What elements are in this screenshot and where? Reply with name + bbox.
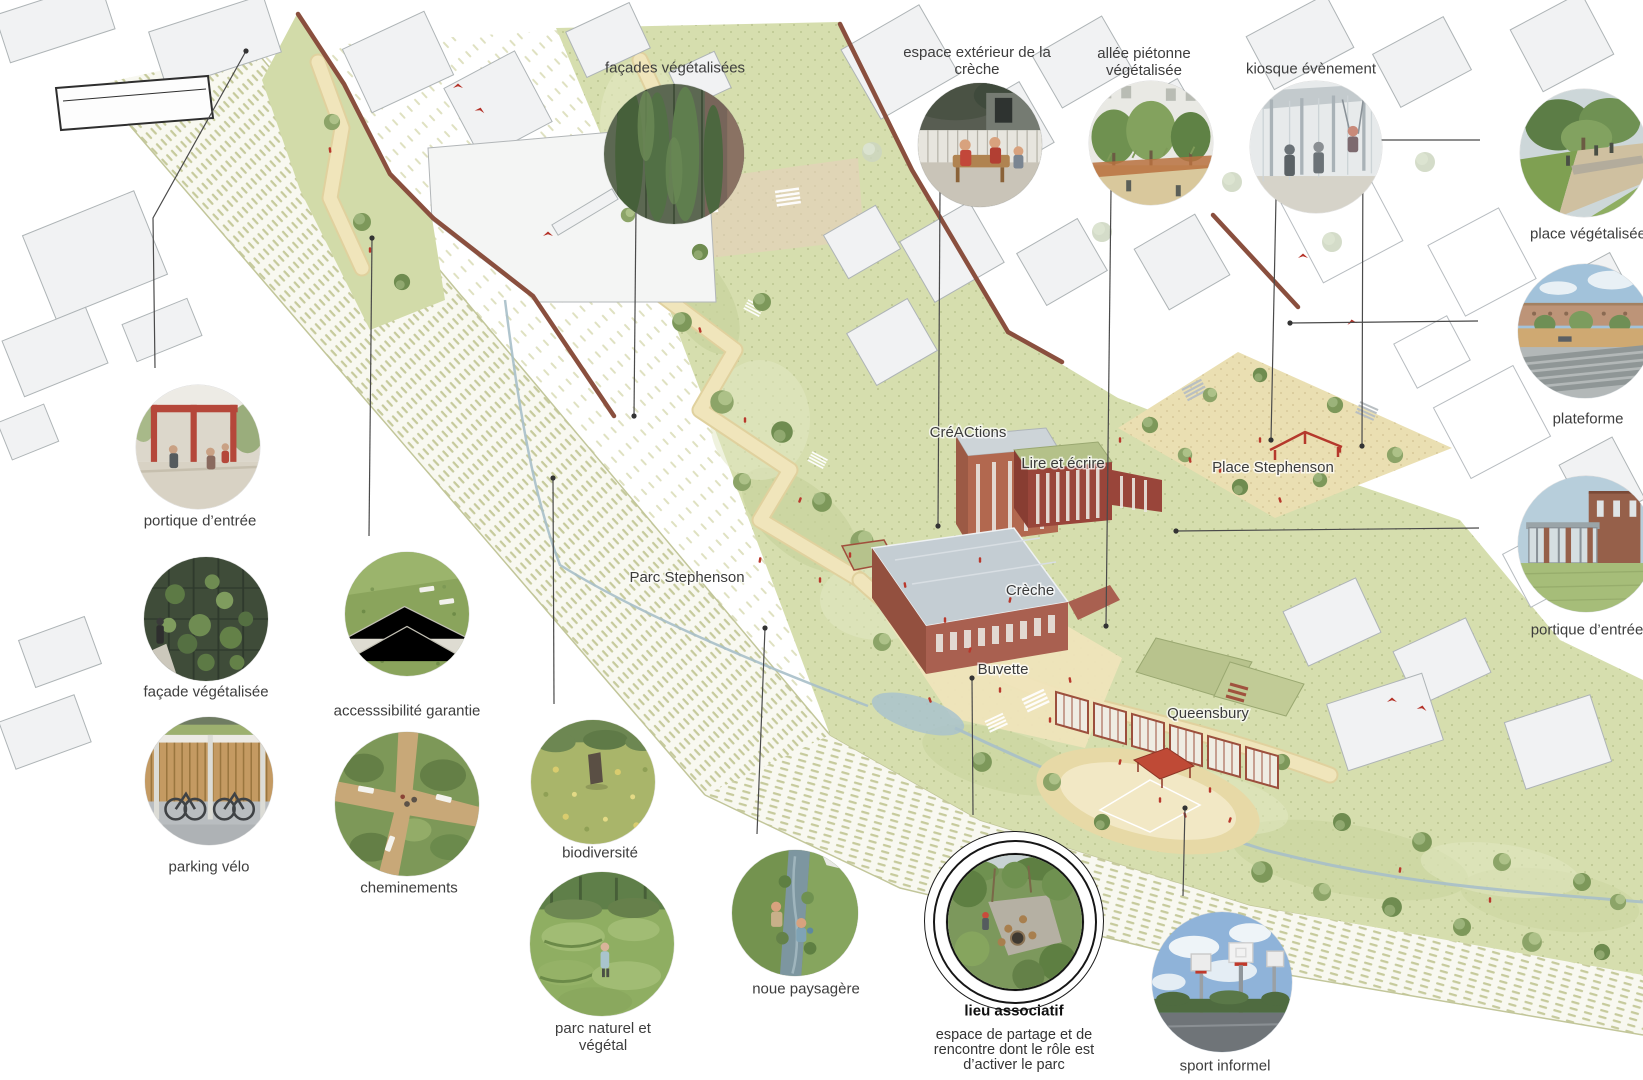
label-sport-informel: sport informel [1180,1059,1271,1076]
photo-portique-entree-gauche [136,385,260,509]
photo-parking-velo [145,717,273,845]
label-biodiversite: biodiversité [562,846,638,863]
label-noue-paysagere: noue paysagère [752,982,860,999]
label-facade-vegetalisee: façade végétalisée [143,685,268,702]
photo-cheminements [335,732,479,876]
plan-label-parc-stephenson: Parc Stephenson [629,569,744,586]
plan-label-creche: Crèche [1006,582,1054,599]
label-allee-pietonne: allée piétonne végétalisée [1088,46,1200,80]
photo-facades-vegetalisees [604,84,744,224]
photo-parc-naturel [530,872,674,1016]
label-espace-exterieur-creche: espace extérieur de la crèche [902,45,1052,79]
label-parc-naturel: parc naturel et végétal [543,1021,663,1055]
plan-label-queensbury: Queensbury [1167,705,1249,722]
photo-lieu-associatif [946,853,1084,991]
label-lieu-associatif-titre: lieu associatif [964,1004,1063,1021]
label-place-vegetalisee: place végétalisée [1530,227,1643,244]
photo-allee-pietonne [1089,81,1213,205]
plan-label-place-stephenson: Place Stephenson [1212,459,1334,476]
photo-sport-informel [1152,912,1292,1052]
label-accessibilite: accesssibilité garantie [334,704,481,721]
photo-place-vegetalisee [1520,89,1643,217]
photo-noue-paysagere [732,850,858,976]
label-kiosque-evenement: kiosque évènement [1246,62,1376,79]
photo-plateforme [1518,264,1643,398]
photo-accessibilite [345,552,469,676]
photo-portique-entree-droite [1518,476,1643,612]
label-facades-vegetalisees: façades végétalisées [605,61,745,78]
plan-label-buvette: Buvette [978,661,1029,678]
masterplan-poster: CréACtions Lire et écrire Place Stephens… [0,0,1643,1080]
label-plateforme: plateforme [1553,412,1624,429]
label-lieu-associatif-description: espace de partage et de rencontre dont l… [930,1028,1098,1074]
label-portique-entree-gauche: portique d’entrée [144,514,257,531]
photo-facade-vegetalisee [144,557,268,681]
label-portique-entree-droite: portique d’entrée [1531,623,1643,640]
plan-label-creactions: CréACtions [930,424,1007,441]
photo-espace-exterieur-creche [918,83,1042,207]
photo-biodiversite [531,720,655,844]
plan-label-lire-et-ecrire: Lire et écrire [1021,455,1104,472]
photo-kiosque-evenement [1250,81,1382,213]
label-cheminements: cheminements [360,881,458,898]
label-parking-velo: parking vélo [169,860,250,877]
